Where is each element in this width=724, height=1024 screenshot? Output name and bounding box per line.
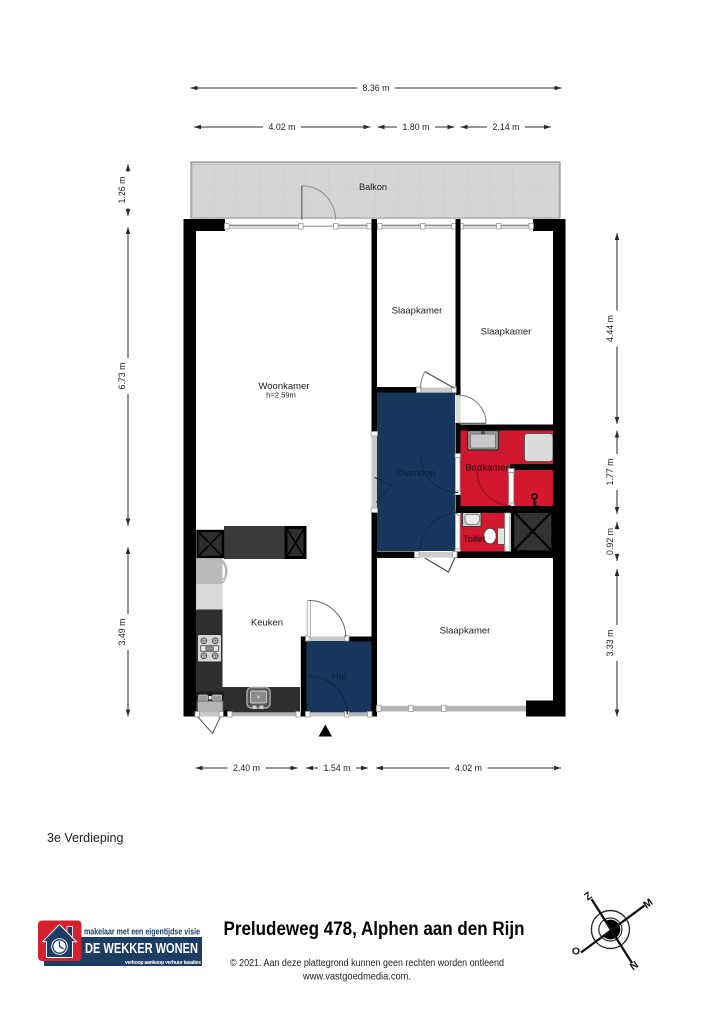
svg-text:3.33 m: 3.33 m [605,630,615,657]
svg-text:makelaar met een eigentijdse v: makelaar met een eigentijdse visie [84,927,200,937]
svg-text:Overloop: Overloop [397,468,436,479]
svg-text:Toilet: Toilet [463,534,486,545]
svg-text:DE WEKKER WONEN: DE WEKKER WONEN [85,941,198,957]
svg-text:3e Verdieping: 3e Verdieping [47,831,124,845]
svg-text:Keuken: Keuken [251,618,283,629]
svg-text:4.02 m: 4.02 m [455,763,482,773]
svg-text:O: O [572,946,580,958]
svg-text:1.26 m: 1.26 m [117,177,127,204]
svg-text:M: M [641,896,655,911]
svg-text:h=2.59m: h=2.59m [266,391,296,400]
svg-text:Slaapkamer: Slaapkamer [481,327,532,338]
svg-text:0.92 m: 0.92 m [605,528,615,555]
svg-text:www.vastgoedmedia.com.: www.vastgoedmedia.com. [302,972,411,983]
svg-text:Balkon: Balkon [359,182,387,192]
svg-text:Slaapkamer: Slaapkamer [440,626,491,637]
svg-text:verkoop aankoop verhuur taxati: verkoop aankoop verhuur taxaties [125,960,201,966]
svg-text:4.44 m: 4.44 m [605,315,615,342]
svg-text:2.40 m: 2.40 m [233,763,260,773]
svg-text:8.36 m: 8.36 m [363,83,390,93]
svg-text:Slaapkamer: Slaapkamer [392,306,443,317]
svg-text:1.80 m: 1.80 m [403,122,430,132]
svg-text:3.49 m: 3.49 m [117,619,127,646]
svg-text:1.54 m: 1.54 m [324,763,351,773]
svg-text:N: N [628,959,641,973]
svg-text:6.73 m: 6.73 m [117,363,127,390]
svg-text:Preludeweg 478, Alphen aan den: Preludeweg 478, Alphen aan den Rijn [224,919,525,940]
svg-text:Hal: Hal [332,672,346,683]
svg-text:4.02 m: 4.02 m [269,122,296,132]
svg-text:Badkamer: Badkamer [465,463,508,474]
svg-text:2.14 m: 2.14 m [493,122,520,132]
svg-text:1.77 m: 1.77 m [605,459,615,486]
svg-text:© 2021. Aan deze plattegrond k: © 2021. Aan deze plattegrond kunnen geen… [230,958,504,969]
